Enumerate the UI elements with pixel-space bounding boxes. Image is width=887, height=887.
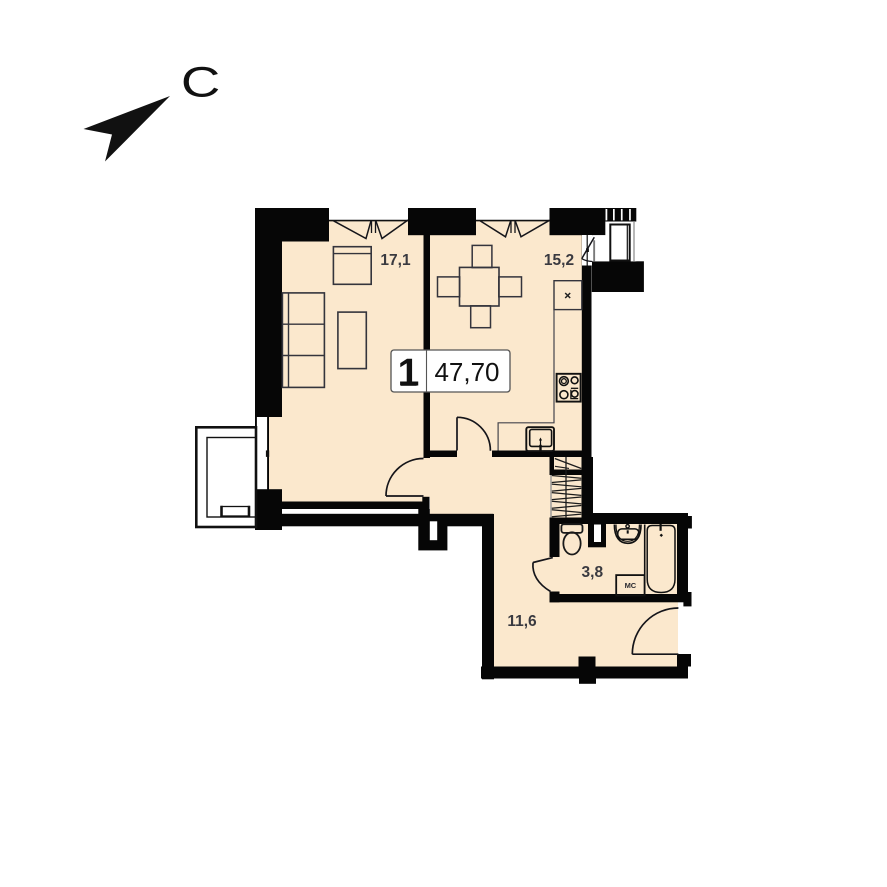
svg-text:17,1: 17,1 — [380, 252, 411, 269]
svg-text:11,6: 11,6 — [507, 613, 537, 630]
svg-text:1: 1 — [398, 352, 420, 395]
svg-text:C: C — [181, 59, 220, 106]
svg-text:МС: МС — [625, 581, 637, 590]
svg-text:3,8: 3,8 — [582, 564, 604, 581]
svg-text:47,70: 47,70 — [434, 357, 499, 387]
svg-text:15,2: 15,2 — [544, 252, 574, 269]
